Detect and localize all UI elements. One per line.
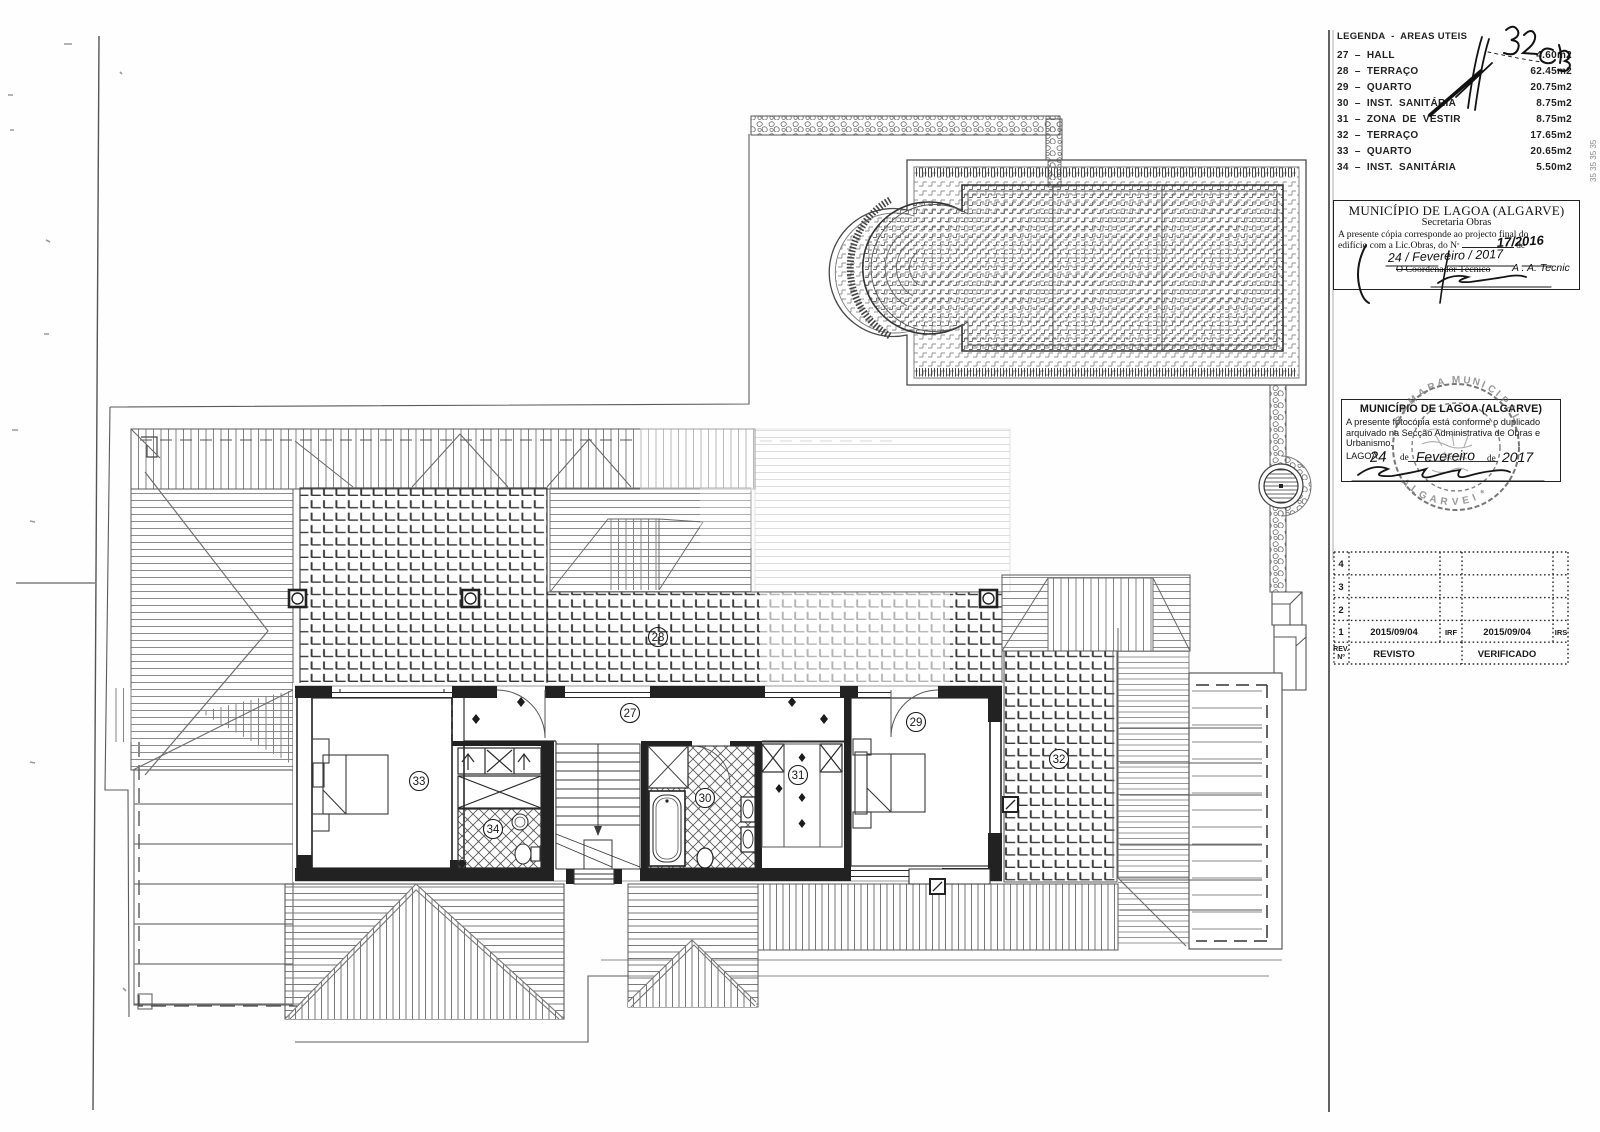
svg-text:4: 4 — [1338, 559, 1344, 570]
svg-text:2015/09/04: 2015/09/04 — [1483, 627, 1531, 638]
svg-text:VERIFICADO: VERIFICADO — [1478, 649, 1537, 660]
svg-text:REVISTO: REVISTO — [1373, 649, 1415, 660]
svg-text:32: 32 — [1053, 754, 1066, 766]
svg-text:34: 34 — [487, 824, 500, 836]
svg-text:1: 1 — [1338, 627, 1344, 638]
svg-text:27: 27 — [624, 708, 637, 720]
svg-text:30: 30 — [699, 793, 712, 805]
svg-text:3: 3 — [1338, 582, 1343, 593]
svg-text:28: 28 — [652, 632, 665, 644]
svg-text:2015/09/04: 2015/09/04 — [1370, 627, 1418, 638]
svg-text:31: 31 — [792, 770, 805, 782]
svg-text:REV.: REV. — [1333, 646, 1349, 653]
svg-text:2: 2 — [1338, 605, 1343, 616]
svg-text:Nº: Nº — [1337, 654, 1345, 661]
svg-text:33: 33 — [413, 776, 426, 788]
svg-text:IRF: IRF — [1445, 628, 1458, 637]
svg-text:29: 29 — [910, 717, 923, 729]
svg-text:IRS: IRS — [1555, 628, 1568, 637]
